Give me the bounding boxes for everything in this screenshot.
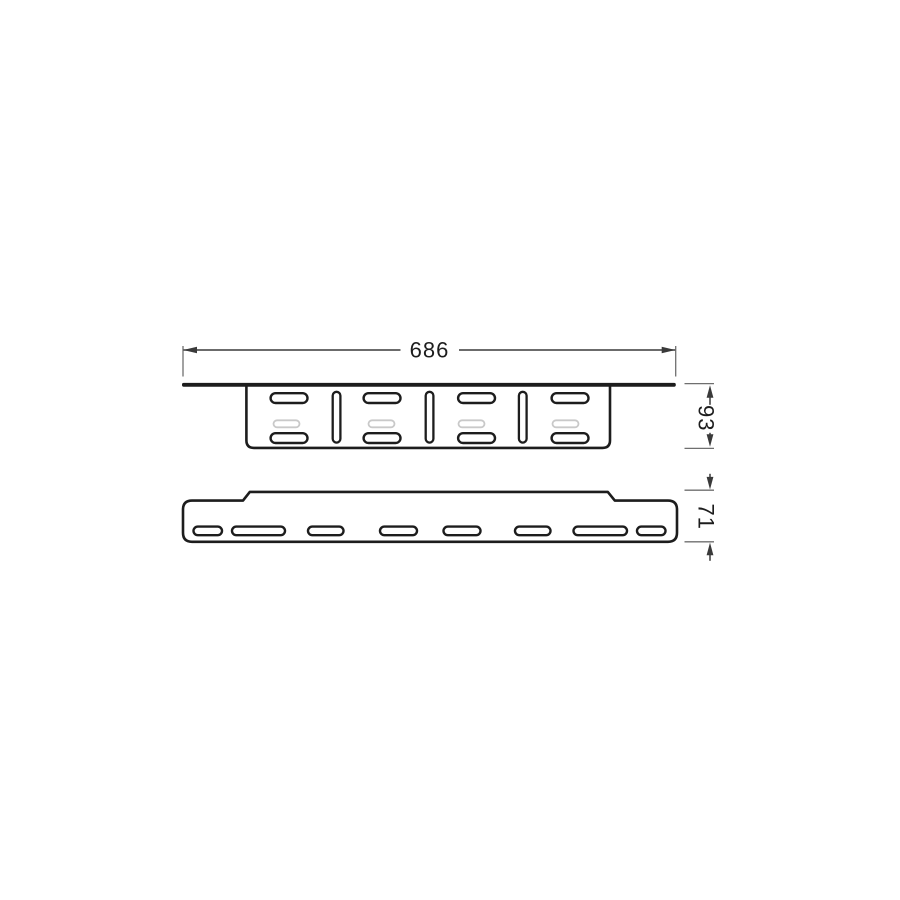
vertical-slot <box>333 392 341 443</box>
flange-edge <box>182 383 676 387</box>
plate-slot <box>574 527 628 536</box>
horizontal-slot <box>271 433 308 443</box>
plate-slot <box>194 527 223 536</box>
vertical-slot <box>426 392 434 443</box>
horizontal-slot <box>364 433 401 443</box>
plate-slot <box>637 527 666 536</box>
dimension-value-height-top: 93 <box>694 405 719 431</box>
technical-drawing-canvas: 686 93 71 <box>0 0 900 900</box>
top-view <box>182 383 676 448</box>
arrowhead-down-icon <box>707 434 714 447</box>
horizontal-slot <box>271 393 308 403</box>
dimension-overall-width: 686 <box>183 338 676 377</box>
bottom-view <box>183 492 677 542</box>
vertical-slot <box>519 392 527 443</box>
horizontal-slot <box>458 393 495 403</box>
horizontal-slot <box>552 433 589 443</box>
plate-slot <box>515 527 551 536</box>
dimension-bottom-view-height: 71 <box>685 474 719 561</box>
plate-slot <box>232 527 285 536</box>
horizontal-slot <box>364 393 401 403</box>
plate-slot <box>444 527 481 536</box>
arrowhead-right-icon <box>662 347 676 354</box>
drawing-page: 686 93 71 <box>0 0 900 900</box>
horizontal-slot <box>552 393 589 403</box>
dimension-top-view-height: 93 <box>685 384 719 449</box>
plate-slot <box>380 527 417 536</box>
dimension-value-height-bottom: 71 <box>694 504 719 530</box>
plate-slot <box>308 527 344 536</box>
arrowhead-left-icon <box>183 347 197 354</box>
horizontal-slot <box>458 433 495 443</box>
arrowhead-up-icon <box>707 385 714 398</box>
dimension-value-width: 686 <box>410 338 450 363</box>
arrowhead-down-icon <box>707 477 714 490</box>
